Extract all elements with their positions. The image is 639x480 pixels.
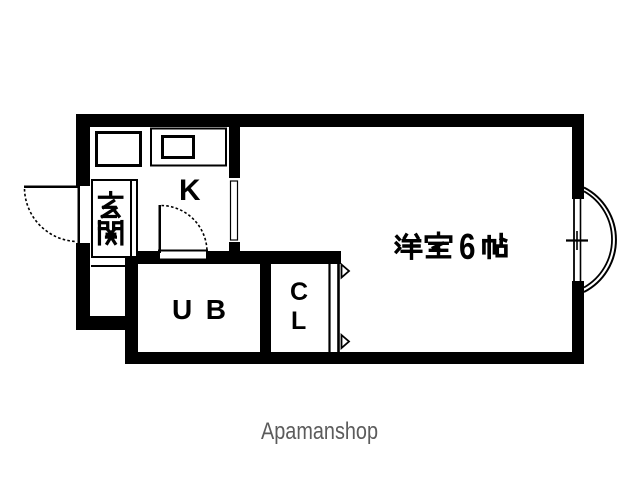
svg-text:L: L — [291, 307, 306, 335]
svg-text:UB: UB — [172, 294, 239, 325]
svg-text:K: K — [179, 174, 201, 207]
svg-text:Apamanshop: Apamanshop — [261, 418, 378, 445]
svg-text:C: C — [290, 278, 308, 306]
svg-text:6: 6 — [459, 226, 476, 267]
